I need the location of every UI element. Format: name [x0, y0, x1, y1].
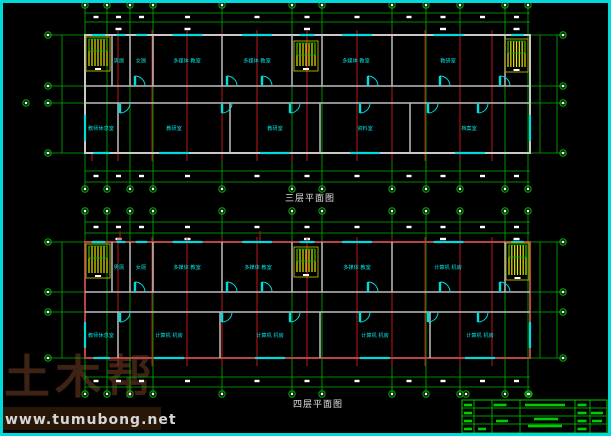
room-label: 女厕 [136, 263, 146, 271]
grid-bubble-label [391, 210, 393, 212]
title-block-text [494, 404, 507, 407]
grid-bubble-label [291, 188, 293, 190]
dimension-text [94, 380, 99, 382]
dimension-text [185, 226, 190, 228]
window-mark [350, 152, 380, 154]
dimension-text [480, 16, 485, 18]
window-mark [300, 34, 315, 36]
grid-bubble-label [425, 188, 427, 190]
grid-bubble-label [459, 4, 461, 6]
window-mark [455, 152, 485, 154]
title-block-text [592, 420, 602, 423]
door-leaf [119, 103, 121, 113]
grid-bubble-label [562, 311, 564, 313]
window-mark [92, 241, 106, 243]
door-leaf [367, 76, 369, 86]
dimension-text [94, 175, 99, 177]
door-arc [262, 282, 272, 292]
door-leaf [134, 76, 136, 86]
grid-bubble-label [562, 152, 564, 154]
door-arc [478, 103, 488, 113]
window-mark [434, 34, 464, 36]
dimension-text [441, 16, 446, 18]
grid-bubble-label [528, 393, 530, 395]
window-mark [93, 152, 110, 154]
grid-bubble-label [152, 4, 154, 6]
grid-bubble-label [47, 85, 49, 87]
dimension-text [355, 226, 360, 228]
dimension-text [116, 175, 121, 177]
room-label: 教研室 [440, 57, 456, 65]
title-block-text [464, 404, 472, 407]
door-arc [428, 103, 438, 113]
dimension-text [305, 175, 310, 177]
dimension-text [480, 226, 485, 228]
door-leaf [499, 282, 501, 292]
grid-bubble-label [25, 102, 27, 104]
door-leaf [427, 103, 429, 113]
door-leaf [439, 76, 441, 86]
window-mark [260, 152, 290, 154]
door-leaf [359, 312, 361, 322]
dimension-text [441, 226, 446, 228]
window-mark [84, 322, 86, 348]
dimension-text [305, 380, 310, 382]
plan-title-third-floor: 三层平面图 [265, 191, 355, 204]
grid-bubble-label [221, 4, 223, 6]
window-mark [242, 34, 272, 36]
dimension-text [407, 226, 412, 228]
door-arc [368, 282, 378, 292]
grid-bubble-label [562, 34, 564, 36]
grid-bubble-label [321, 188, 323, 190]
door-arc [222, 312, 232, 322]
room-label: 计算机 机房 [361, 331, 389, 339]
door-leaf [119, 312, 121, 322]
door-arc [262, 76, 272, 86]
dimension-text [255, 175, 260, 177]
window-mark [159, 152, 189, 154]
grid-bubble-label [47, 311, 49, 313]
window-mark [154, 357, 184, 359]
grid-bubble-label [321, 210, 323, 212]
window-mark [173, 241, 203, 243]
grid-bubble-label [47, 291, 49, 293]
room-label: 男厕 [114, 264, 124, 271]
door-leaf [477, 103, 479, 113]
grid-bubble-label [459, 188, 461, 190]
dimension-text [514, 16, 519, 18]
door-arc [227, 76, 237, 86]
window-mark [117, 241, 126, 243]
grid-bubble-label [391, 4, 393, 6]
door-leaf [261, 282, 263, 292]
grid-bubble-label [562, 291, 564, 293]
room-label: 计算机 机房 [256, 331, 284, 339]
room-label: 教研室 [267, 124, 283, 132]
dimension-text [355, 175, 360, 177]
door-arc [478, 312, 488, 322]
dimension-text [407, 175, 412, 177]
grid-bubble-label [47, 357, 49, 359]
door-leaf [289, 103, 291, 113]
window-mark [92, 34, 106, 36]
dimension-text [514, 380, 519, 382]
window-mark [529, 115, 531, 141]
grid-bubble-label [221, 393, 223, 395]
window-mark [136, 34, 148, 36]
window-mark [342, 34, 372, 36]
dimension-text [185, 175, 190, 177]
room-label: 女厕 [136, 57, 146, 65]
door-leaf [226, 76, 228, 86]
stair-text [515, 277, 521, 279]
dimension-text [514, 238, 520, 240]
dimension-text [305, 226, 310, 228]
floor-plan-drawing: 男厕女厕多媒体 教室多媒体 教室多媒体 教室教研室教师休息室教研室教研室资料室档… [0, 0, 611, 436]
dimension-text [255, 226, 260, 228]
dimension-text [440, 28, 446, 30]
title-block-text [578, 412, 587, 415]
dimension-text [139, 16, 144, 18]
grid-bubble-label [84, 210, 86, 212]
title-block-text [578, 428, 587, 431]
room-label: 教师休息室 [88, 331, 114, 339]
room-label: 计算机 机房 [434, 263, 462, 271]
title-block-text [578, 420, 587, 423]
dimension-text [116, 16, 121, 18]
room-label: 教师休息室 [88, 124, 114, 132]
window-mark [93, 357, 110, 359]
room-label: 资料室 [357, 124, 373, 132]
room-label: 多媒体 教室 [243, 57, 271, 65]
grid-bubble-label [425, 393, 427, 395]
window-mark [300, 241, 315, 243]
room-label: 多媒体 教室 [342, 57, 370, 65]
dimension-text [407, 380, 412, 382]
window-mark [434, 241, 464, 243]
grid-bubble-label [152, 393, 154, 395]
door-leaf [359, 103, 361, 113]
dimension-text [139, 380, 144, 382]
room-label: 多媒体 教室 [173, 263, 201, 271]
grid-bubble-label [391, 188, 393, 190]
door-arc [290, 103, 300, 113]
grid-bubble-label [106, 188, 108, 190]
dimension-text [355, 16, 360, 18]
room-label: 多媒体 教室 [343, 263, 371, 271]
grid-bubble-label [527, 210, 529, 212]
grid-bubble-label [562, 357, 564, 359]
door-leaf [499, 76, 501, 86]
grid-bubble-label [425, 4, 427, 6]
window-mark [242, 241, 272, 243]
stair-text [514, 69, 520, 71]
grid-bubble-label [106, 210, 108, 212]
grid-bubble-label [47, 152, 49, 154]
window-mark [117, 34, 126, 36]
door-arc [227, 282, 237, 292]
door-arc [135, 282, 145, 292]
window-mark [255, 357, 285, 359]
dimension-text [440, 238, 446, 240]
grid-bubble-label [129, 393, 131, 395]
door-arc [440, 76, 450, 86]
stair-text [95, 68, 101, 70]
grid-bubble-label [47, 34, 49, 36]
watermark-url-bar: www.tumubong.net [0, 407, 161, 430]
door-leaf [226, 282, 228, 292]
door-leaf [427, 312, 429, 322]
room-label: 多媒体 教室 [244, 263, 272, 271]
dimension-text [116, 226, 121, 228]
title-block-text [464, 428, 472, 431]
door-leaf [439, 282, 441, 292]
dimension-text [94, 16, 99, 18]
title-block-text [464, 412, 472, 415]
dimension-text [355, 380, 360, 382]
door-leaf [477, 312, 479, 322]
title-block-text [464, 420, 472, 423]
plan-title-fourth-floor: 四层平面图 [273, 397, 363, 410]
grid-bubble-label [321, 393, 323, 395]
title-block-text [478, 428, 486, 431]
door-arc [120, 103, 130, 113]
window-mark [360, 357, 390, 359]
dimension-text [305, 16, 310, 18]
dimension-text [116, 28, 122, 30]
room-label: 多媒体 教室 [173, 57, 201, 65]
grid-bubble-label [459, 393, 461, 395]
door-leaf [221, 312, 223, 322]
dimension-text [441, 175, 446, 177]
door-leaf [134, 282, 136, 292]
grid-bubble-label [504, 210, 506, 212]
grid-bubble-label [504, 188, 506, 190]
grid-bubble-label [459, 210, 461, 212]
grid-bubble-label [129, 210, 131, 212]
grid-bubble-label [106, 4, 108, 6]
grid-bubble-label [47, 241, 49, 243]
dimension-text [185, 380, 190, 382]
grid-bubble-label [106, 393, 108, 395]
window-mark [529, 322, 531, 348]
window-mark [173, 34, 203, 36]
grid-bubble-label [562, 102, 564, 104]
dimension-text [514, 226, 519, 228]
stair-text [303, 274, 309, 276]
title-block-text [496, 420, 508, 423]
title-block-text [534, 418, 558, 421]
room-label: 档案室 [461, 124, 477, 132]
room-label: 男厕 [114, 58, 124, 65]
grid-bubble-label [527, 4, 529, 6]
stair-text [303, 68, 309, 70]
grid-bubble-label [291, 210, 293, 212]
door-arc [368, 76, 378, 86]
title-block-text [578, 404, 587, 407]
grid-bubble-label [527, 188, 529, 190]
dimension-text [255, 16, 260, 18]
grid-bubble-label [291, 4, 293, 6]
grid-bubble-label [47, 102, 49, 104]
dimension-text [185, 28, 191, 30]
grid-bubble-label [84, 188, 86, 190]
dimension-text [480, 380, 485, 382]
grid-bubble-label [221, 188, 223, 190]
cad-canvas: 土木帮 男厕女厕多媒体 教室多媒体 教室多媒体 教室教研室教师休息室教研室教研室… [0, 0, 611, 436]
door-arc [290, 312, 300, 322]
title-block-text [528, 425, 562, 428]
door-leaf [289, 312, 291, 322]
room-label: 计算机 机房 [155, 331, 183, 339]
window-mark [84, 115, 86, 141]
dimension-text [116, 380, 121, 382]
room-label: 教研室 [166, 124, 182, 132]
watermark-url: www.tumubong.net [0, 412, 177, 428]
grid-bubble-label [152, 210, 154, 212]
dimension-text [139, 175, 144, 177]
door-arc [135, 76, 145, 86]
window-mark [342, 241, 372, 243]
door-arc [440, 282, 450, 292]
grid-bubble-label [465, 393, 467, 395]
dimension-text [407, 16, 412, 18]
grid-bubble-label [504, 4, 506, 6]
room-label: 计算机 机房 [466, 331, 494, 339]
dimension-text [480, 175, 485, 177]
door-leaf [221, 103, 223, 113]
grid-bubble-label [425, 210, 427, 212]
title-block-text [525, 404, 565, 407]
door-arc [360, 312, 370, 322]
grid-bubble-label [504, 393, 506, 395]
grid-bubble-label [152, 188, 154, 190]
grid-bubble-label [84, 4, 86, 6]
dimension-text [139, 226, 144, 228]
door-arc [120, 312, 130, 322]
window-mark [465, 357, 495, 359]
dimension-text [94, 226, 99, 228]
window-mark [136, 241, 148, 243]
window-mark [511, 34, 524, 36]
dimension-text [514, 175, 519, 177]
stair-text [95, 275, 101, 277]
grid-bubble-label [391, 393, 393, 395]
door-leaf [261, 76, 263, 86]
grid-bubble-label [562, 241, 564, 243]
grid-bubble-label [84, 393, 86, 395]
dimension-text [255, 380, 260, 382]
title-block-text [591, 412, 603, 415]
grid-bubble-label [291, 393, 293, 395]
dimension-text [514, 28, 520, 30]
door-arc [360, 103, 370, 113]
dimension-text [304, 28, 310, 30]
door-leaf [367, 282, 369, 292]
dimension-text [185, 16, 190, 18]
grid-bubble-label [129, 4, 131, 6]
dimension-text [441, 380, 446, 382]
grid-bubble-label [562, 85, 564, 87]
grid-bubble-label [221, 210, 223, 212]
grid-bubble-label [321, 4, 323, 6]
grid-bubble-label [129, 188, 131, 190]
